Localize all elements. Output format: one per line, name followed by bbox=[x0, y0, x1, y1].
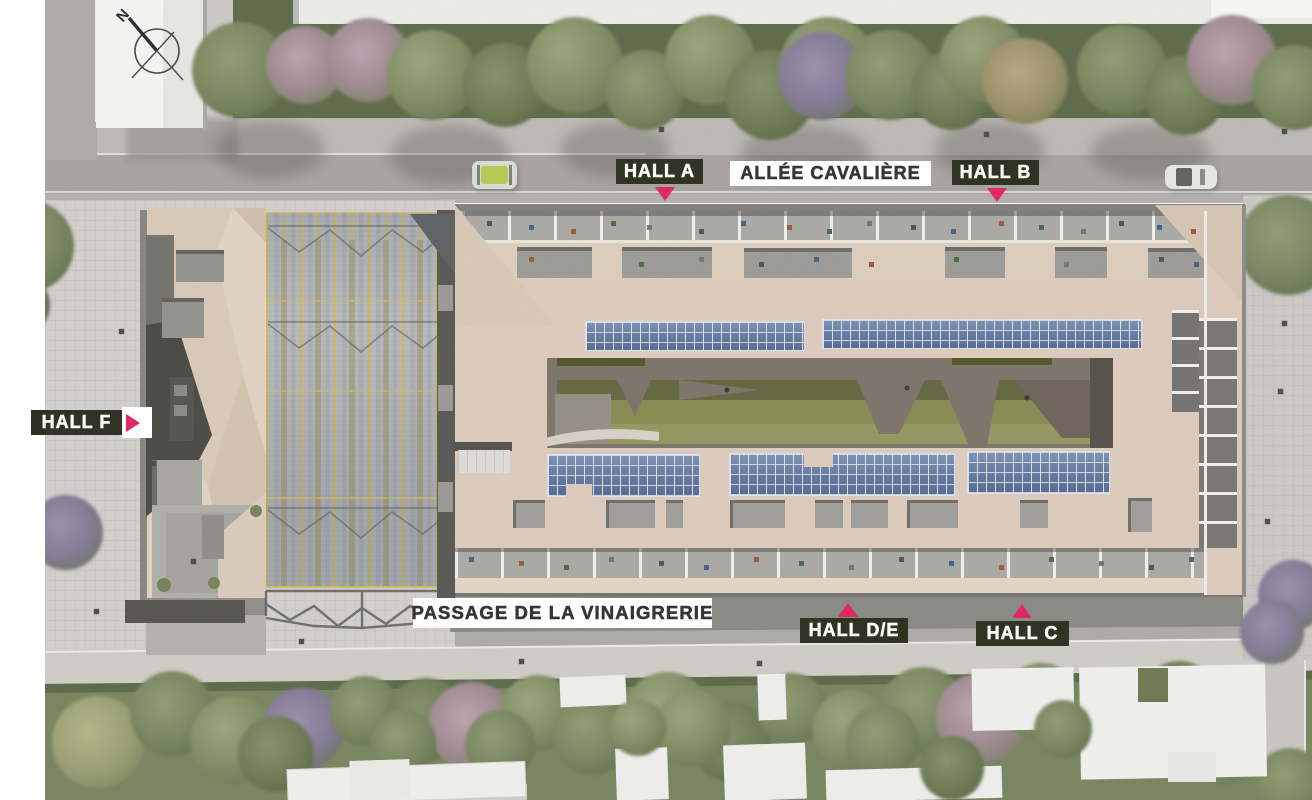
svg-text:N: N bbox=[113, 6, 133, 25]
